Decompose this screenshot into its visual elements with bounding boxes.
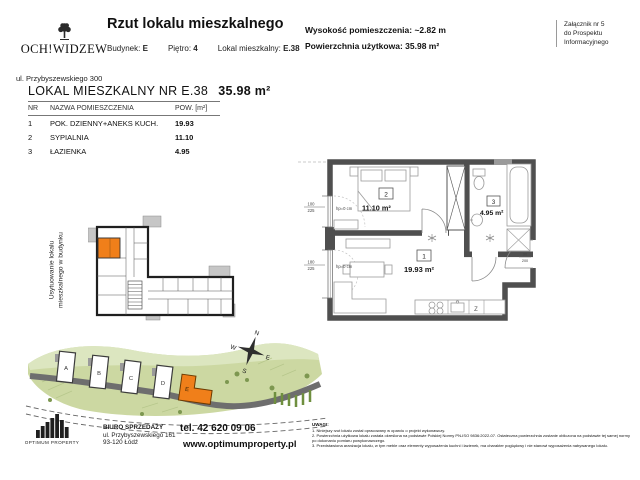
window-2 — [328, 250, 332, 298]
meta-unit: Lokal mieszkalny: E.38 — [218, 44, 300, 53]
kitchen-mark: Z — [474, 307, 478, 313]
table — [350, 262, 384, 277]
room-2-area: 11.10 m² — [362, 204, 391, 213]
table-row: 3ŁAZIENKA4.95 — [28, 144, 220, 158]
page-title: Rzut lokalu mieszkalnego — [107, 16, 283, 32]
staircase — [128, 281, 142, 309]
entry-door-height: 200 — [522, 259, 528, 263]
window-1-sill: hp=0 cm — [336, 206, 353, 211]
building-d-label: D — [161, 381, 165, 387]
room-1-number: 1 — [422, 254, 426, 261]
room-2-number: 2 — [384, 192, 388, 199]
building-location-plan — [88, 213, 250, 321]
unit-heading: LOKAL MIESZKALNY NR E.3835.98 m² — [28, 84, 271, 98]
wardrobe-shaft — [447, 166, 465, 230]
tree-icon — [56, 22, 73, 40]
meta-building: Budynek: E — [107, 44, 148, 53]
sales-office-address-2: 93-120 Łódź — [103, 439, 175, 447]
sales-office-address-1: ul. Przybyszewskiego 161 — [103, 432, 175, 440]
optimum-property-logo-icon — [36, 414, 72, 439]
table-row: 2SYPIALNIA11.10 — [28, 130, 220, 144]
unit-specs: Wysokość pomieszczenia: ~2.82 m Powierzc… — [305, 23, 446, 54]
phone-number: tel. 42 620 09 06 — [180, 423, 256, 434]
sales-office-title: BIURO SPRZEDAŻY — [103, 424, 175, 432]
unit-meta: Budynek: E Piętro: 4 Lokal mieszkalny: E… — [107, 44, 300, 53]
sink — [451, 303, 464, 312]
window-2-height: 225 — [308, 266, 316, 271]
apartment-floor-plan: 1 19.93 m² 2 11.10 m² 3 4.95 m² Z 100 22… — [298, 136, 566, 336]
brand-name: OCH!WIDZEW — [21, 42, 108, 56]
window-1-height: 225 — [308, 208, 316, 213]
window-1 — [328, 196, 332, 227]
sales-office-info: BIURO SPRZEDAŻY ul. Przybyszewskiego 161… — [103, 424, 175, 447]
spec-height: Wysokość pomieszczenia: ~2.82 m — [305, 23, 446, 39]
room-1-area: 19.93 m² — [404, 265, 435, 274]
attachment-note: Załącznik nr 5 do Prospektu Informacyjne… — [556, 20, 608, 47]
website-url[interactable]: www.optimumproperty.pl — [183, 439, 296, 450]
legal-notes: UWAGI: 1. Niniejszy rzut lokalu został o… — [312, 422, 634, 448]
project-address: ul. Przybyszewskiego 300 — [16, 74, 102, 83]
rooms-table: NR NAZWA POMIESZCZENIA POW. [m²] 1POK. D… — [28, 101, 220, 158]
building-b-label: B — [97, 371, 101, 377]
dresser — [334, 220, 358, 229]
compass-n: N — [254, 330, 260, 337]
toilet — [474, 177, 484, 190]
sideboard — [346, 239, 390, 248]
optimum-property-brand: OPTIMUM PROPERTY — [20, 440, 84, 445]
rooms-table-header: NR NAZWA POMIESZCZENIA POW. [m²] — [28, 101, 220, 116]
spec-area: Powierzchnia użytkowa: 35.98 m² — [305, 39, 446, 55]
table-row: 1POK. DZIENNY+ANEKS KUCH.19.93 — [28, 116, 220, 130]
window-1-width: 100 — [308, 202, 316, 207]
stove-burner — [429, 302, 435, 308]
meta-floor: Piętro: 4 — [168, 44, 198, 53]
mini-plan-caption: Usytuowanie lokalu mieszkalnego w budynk… — [49, 210, 66, 330]
room-3-area: 4.95 m² — [480, 210, 504, 217]
window-2-sill: hp=0 cm — [336, 264, 353, 269]
building-c-label: C — [129, 376, 133, 382]
unit-area: 35.98 m² — [218, 84, 270, 98]
entry-door-width: 90 — [523, 253, 527, 257]
note-3: 3. Przedstawiona aranżacja lokalu, w tym… — [312, 443, 634, 448]
notes-title: UWAGI: — [312, 422, 634, 427]
building-a-label: A — [64, 366, 68, 372]
window-2-width: 180 — [308, 260, 316, 265]
developer-logo: OCH!WIDZEW — [18, 22, 110, 58]
note-2: 2. Powierzchnia użytkowa lokalu została … — [312, 433, 634, 443]
highlighted-unit — [98, 238, 120, 258]
